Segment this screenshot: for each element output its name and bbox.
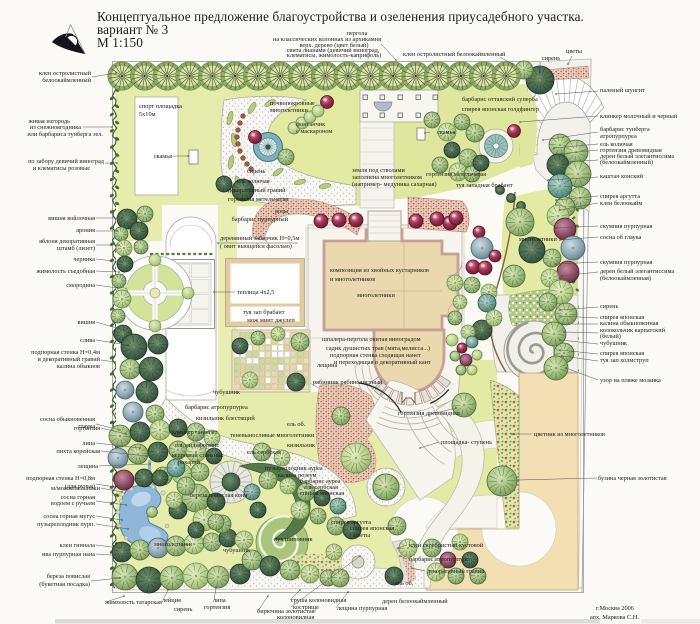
svg-text:деревянный заборчик Н=0,5м: деревянный заборчик Н=0,5м — [220, 235, 299, 242]
svg-text:спирея аргутта: спирея аргутта — [600, 193, 640, 200]
svg-text:атропурпуреа: атропурпуреа — [600, 133, 637, 140]
svg-text:и декоративный гравий: и декоративный гравий — [38, 356, 101, 363]
svg-text:сирень: сирень — [542, 55, 560, 62]
svg-text:барбарис оттавский суперба: барбарис оттавский суперба — [462, 96, 538, 103]
svg-text:пузыреплодник ауреа: пузыреплодник ауреа — [265, 465, 323, 472]
svg-text:липа: липа — [82, 440, 95, 447]
svg-text:клен белоокайм: клен белоокайм — [600, 200, 642, 207]
svg-text:(например- медуника сахарная): (например- медуника сахарная) — [352, 181, 437, 188]
svg-text:спорт площадка: спорт площадка — [139, 103, 182, 110]
svg-text:сосна горная мугус: сосна горная мугус — [43, 513, 95, 520]
svg-text:груша колоновидная: груша колоновидная — [291, 597, 346, 604]
svg-text:фонтанчик: фонтанчик — [296, 121, 326, 128]
svg-text:каштан конский: каштан конский — [600, 173, 644, 180]
svg-text:заполнена многолетником: заполнена многолетником — [352, 174, 422, 181]
svg-text:дерен белый элегантиссима: дерен белый элегантиссима — [600, 268, 674, 275]
svg-text:скамья: скамья — [437, 129, 455, 136]
svg-text:клен гиннала: клен гиннала — [60, 542, 96, 549]
svg-text:жимолость татарская: жимолость татарская — [104, 599, 162, 606]
svg-text:5х10м: 5х10м — [139, 111, 156, 118]
svg-text:композиция из хвойных кустарни: композиция из хвойных кустарников — [330, 267, 429, 274]
svg-text:М 1:150: М 1:150 — [97, 35, 143, 50]
svg-text:мож минт джулеп: мож минт джулеп — [247, 317, 295, 324]
svg-text:гортензия: гортензия — [74, 425, 100, 432]
svg-text:по забору девичий виноград: по забору девичий виноград — [28, 158, 105, 165]
svg-text:арония: арония — [76, 227, 95, 234]
svg-text:сосна об глаука: сосна об глаука — [600, 234, 642, 241]
svg-text:(букетная посадка): (букетная посадка) — [39, 581, 90, 588]
svg-text:кизильник: кизильник — [287, 442, 316, 449]
svg-text:многолетники: многолетники — [270, 107, 308, 114]
svg-text:береза повислая кони: береза повислая кони — [190, 492, 248, 499]
svg-text:яблоня декоративная: яблоня декоративная — [39, 238, 95, 245]
svg-text:почвопокровные: почвопокровные — [270, 100, 315, 107]
svg-text:лещина пурпурная: лещина пурпурная — [337, 605, 387, 612]
svg-text:подпорная стенка Н=0,8м: подпорная стенка Н=0,8м — [26, 475, 95, 482]
svg-text:смородина: смородина — [66, 282, 95, 289]
svg-text:спирея японская: спирея японская — [350, 525, 394, 532]
svg-text:Концептуальное предложение бла: Концептуальное предложение благоустройст… — [97, 9, 584, 24]
svg-text:клен серебристый кустовой: клен серебристый кустовой — [409, 542, 484, 549]
svg-text:туя западная брабант: туя западная брабант — [456, 182, 513, 189]
svg-text:спирея японская голдфингер: спирея японская голдфингер — [462, 106, 539, 113]
svg-text:земля под стволами: земля под стволами — [352, 167, 405, 174]
svg-text:(белоокаймленная): (белоокаймленная) — [600, 275, 651, 282]
svg-text:многолетники: многолетники — [357, 292, 395, 299]
svg-text:клинкер+шунгит: клинкер+шунгит — [172, 429, 218, 436]
svg-text:подпорная стенка сходящая нане: подпорная стенка сходящая нанет — [330, 352, 421, 359]
svg-text:туя зап брабант: туя зап брабант — [243, 309, 285, 316]
svg-text:гортензия метельчатая: гортензия метельчатая — [426, 171, 486, 178]
svg-text:туя зап холмструп: туя зап холмструп — [600, 357, 649, 364]
svg-text:ива пурпурная нана: ива пурпурная нана — [42, 551, 95, 558]
svg-text:вишня войлочная: вишня войлочная — [48, 215, 95, 222]
svg-text:розы: розы — [275, 208, 289, 215]
svg-text:барбарис пурпурный: барбарис пурпурный — [232, 216, 289, 223]
svg-text:спирея японская: спирея японская — [600, 350, 644, 357]
svg-text:спирея японская: спирея японская — [300, 490, 344, 497]
svg-text:барбарис атропурпуреа: барбарис атропурпуреа — [409, 556, 472, 563]
svg-text:клен остролистный: клен остролистный — [39, 70, 92, 77]
svg-text:сосна обыкновенная: сосна обыкновенная — [40, 416, 95, 423]
svg-text:теплица 4х2,5: теплица 4х2,5 — [237, 289, 274, 296]
svg-text:ель нидиформис: ель нидиформис — [175, 442, 219, 449]
svg-text:(белый): (белый) — [600, 333, 621, 340]
svg-text:( овит вьющейся фасолью): ( овит вьющейся фасолью) — [220, 243, 292, 250]
svg-text:цветы: цветы — [354, 532, 371, 539]
svg-text:слива: слива — [80, 337, 95, 344]
svg-text:бузина черная золотистая: бузина черная золотистая — [598, 475, 667, 482]
svg-text:многолетники: многолетники — [154, 541, 192, 548]
svg-text:м/можжевельники: м/можжевельники — [51, 485, 101, 492]
svg-text:пихта корейская: пихта корейская — [56, 448, 100, 455]
svg-text:теневыносливые многолетники: теневыносливые многолетники — [230, 432, 315, 439]
svg-text:сирень: сирень — [174, 606, 192, 613]
svg-text:липа: липа — [213, 597, 226, 604]
svg-text:кизильник блестящий: кизильник блестящий — [196, 415, 255, 422]
svg-text:клематисы, жимолость-каприфоль: клематисы, жимолость-каприфоль) — [287, 52, 381, 59]
svg-text:гортензия метельчатая: гортензия метельчатая — [228, 196, 288, 203]
svg-text:лещина: лещина — [317, 362, 338, 369]
svg-text:чубушник: чубушник — [223, 547, 251, 554]
svg-text:и клематисы розовые: и клематисы розовые — [33, 165, 90, 172]
svg-text:пузыреплодник пурп.: пузыреплодник пурп. — [37, 521, 95, 528]
svg-text:сирень: сирень — [247, 168, 265, 175]
svg-text:сирень: сирень — [600, 303, 618, 310]
svg-text:декоративный гравий: декоративный гравий — [427, 568, 485, 575]
svg-text:гортензия: гортензия — [204, 604, 230, 611]
svg-text:черника: черника — [73, 256, 95, 263]
svg-text:из снежноягодника: из снежноягодника — [30, 124, 81, 131]
svg-text:ель колючая: ель колючая — [237, 178, 270, 185]
svg-text:белоокаймленный: белоокаймленный — [42, 77, 91, 84]
svg-text:(белоокаймленный): (белоокаймленный) — [600, 159, 653, 166]
svg-text:береза повислая: береза повислая — [47, 573, 90, 580]
svg-text:скумпия пурпурная: скумпия пурпурная — [600, 223, 653, 230]
svg-text:калина обыкнов: калина обыкнов — [57, 363, 100, 370]
svg-text:рокарий: рокарий — [178, 459, 201, 466]
svg-text:г.Москва 2006: г.Москва 2006 — [596, 605, 634, 612]
svg-text:кедровый сталаник: кедровый сталаник — [172, 452, 224, 459]
svg-text:ель об.: ель об. — [287, 421, 306, 428]
svg-text:паленый шунгит: паленый шунгит — [600, 87, 645, 94]
svg-text:декоративный гравий: декоративный гравий — [228, 187, 286, 194]
svg-text:вишня: вишня — [78, 319, 96, 326]
svg-text:штамб (лизет): штамб (лизет) — [57, 245, 95, 252]
svg-text:клен остролистный белоокаймлен: клен остролистный белоокаймленный — [403, 51, 506, 58]
svg-text:гортензия древовидная: гортензия древовидная — [398, 410, 460, 417]
svg-text:чубушник: чубушник — [600, 340, 628, 347]
svg-text:чубушник: чубушник — [213, 389, 241, 396]
svg-text:многолетники: многолетники — [519, 236, 557, 243]
svg-text:цветы: цветы — [566, 48, 583, 55]
svg-text:узор на пляже мозаика: узор на пляже мозаика — [600, 377, 661, 384]
svg-text:шпалера-пергола овитая виногра: шпалера-пергола овитая виноградом — [322, 336, 421, 343]
svg-text:садик душистых трав (мята,мели: садик душистых трав (мята,мелисса...) — [326, 345, 430, 352]
svg-text:ель об.: ель об. — [395, 580, 414, 587]
svg-text:дерен белоокаймленный: дерен белоокаймленный — [382, 598, 448, 605]
svg-text:площадка- ступень: площадка- ступень — [441, 439, 492, 446]
svg-text:и многолетников: и многолетников — [330, 276, 375, 283]
svg-text:и переходящая в декоративный к: и переходящая в декоративный кант — [334, 359, 431, 366]
svg-text:или барбариса тунберга зел.: или барбариса тунберга зел. — [27, 131, 103, 138]
svg-text:жимолость съедобная: жимолость съедобная — [35, 268, 95, 275]
svg-text:цветник из многолетников: цветник из многолетников — [534, 431, 605, 438]
svg-text:скумпия пурпурная: скумпия пурпурная — [600, 259, 653, 266]
svg-text:скамья: скамья — [154, 153, 172, 160]
svg-text:клинкер молочный и черный: клинкер молочный и черный — [600, 113, 678, 120]
svg-text:калина обыкновенная: калина обыкновенная — [600, 320, 658, 327]
svg-text:лейция: лейция — [162, 597, 181, 604]
svg-text:лух шиповник: лух шиповник — [274, 536, 313, 543]
svg-text:подпорная стенка Н=0,4м: подпорная стенка Н=0,4м — [31, 349, 100, 356]
svg-text:водоем с ручьем: водоем с ручьем — [51, 500, 95, 507]
svg-text:ель сербская: ель сербская — [247, 449, 281, 456]
svg-text:рябинник рябинолистный: рябинник рябинолистный — [313, 379, 383, 386]
svg-text:с маскароном: с маскароном — [296, 128, 332, 135]
svg-text:барбарис атропурпуреа: барбарис атропурпуреа — [185, 404, 248, 411]
svg-text:лещина: лещина — [78, 463, 99, 470]
svg-text:барбарис тунберга: барбарис тунберга — [600, 126, 650, 133]
